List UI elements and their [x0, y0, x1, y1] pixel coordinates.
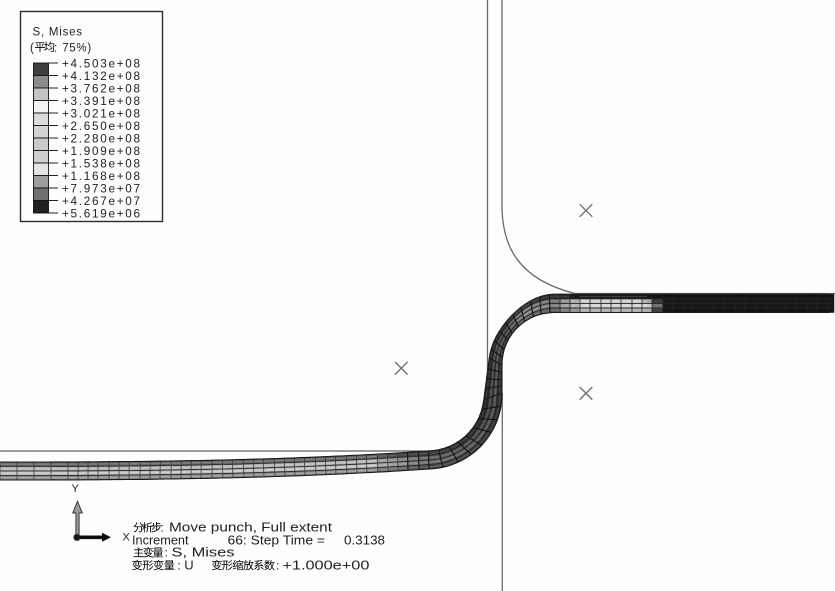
svg-text:+1.168e+08: +1.168e+08 — [62, 170, 140, 183]
svg-text:+3.762e+08: +3.762e+08 — [62, 82, 140, 95]
svg-text:66: Step Time =: 66: Step Time = — [228, 532, 326, 547]
svg-text:(: ( — [30, 43, 34, 55]
svg-text:+4.132e+08: +4.132e+08 — [62, 70, 140, 83]
svg-text:0.3138: 0.3138 — [344, 532, 385, 547]
svg-text:+3.391e+08: +3.391e+08 — [62, 95, 140, 108]
svg-text:S, Mises: S, Mises — [172, 545, 236, 560]
svg-text:S, Mises: S, Mises — [33, 27, 83, 39]
svg-text:+2.280e+08: +2.280e+08 — [62, 132, 140, 145]
svg-text::: : — [165, 546, 168, 560]
svg-text:+4.503e+08: +4.503e+08 — [62, 57, 140, 70]
svg-text:+7.973e+07: +7.973e+07 — [62, 182, 140, 195]
svg-text::: : — [177, 558, 180, 572]
svg-text::: : — [276, 558, 279, 572]
svg-text:+4.267e+07: +4.267e+07 — [62, 195, 140, 208]
svg-text:+2.650e+08: +2.650e+08 — [62, 120, 140, 133]
svg-text:+3.021e+08: +3.021e+08 — [62, 107, 140, 120]
svg-text:+1.909e+08: +1.909e+08 — [62, 145, 140, 158]
svg-text:+1.000e+00: +1.000e+00 — [282, 557, 369, 572]
svg-text:X: X — [123, 532, 131, 544]
svg-text:U: U — [184, 557, 193, 572]
svg-text:Y: Y — [72, 483, 80, 495]
svg-text:75%): 75%) — [62, 43, 91, 55]
svg-text:+1.538e+08: +1.538e+08 — [62, 157, 140, 170]
svg-text:+5.619e+06: +5.619e+06 — [62, 207, 140, 220]
svg-text::: : — [54, 43, 57, 55]
